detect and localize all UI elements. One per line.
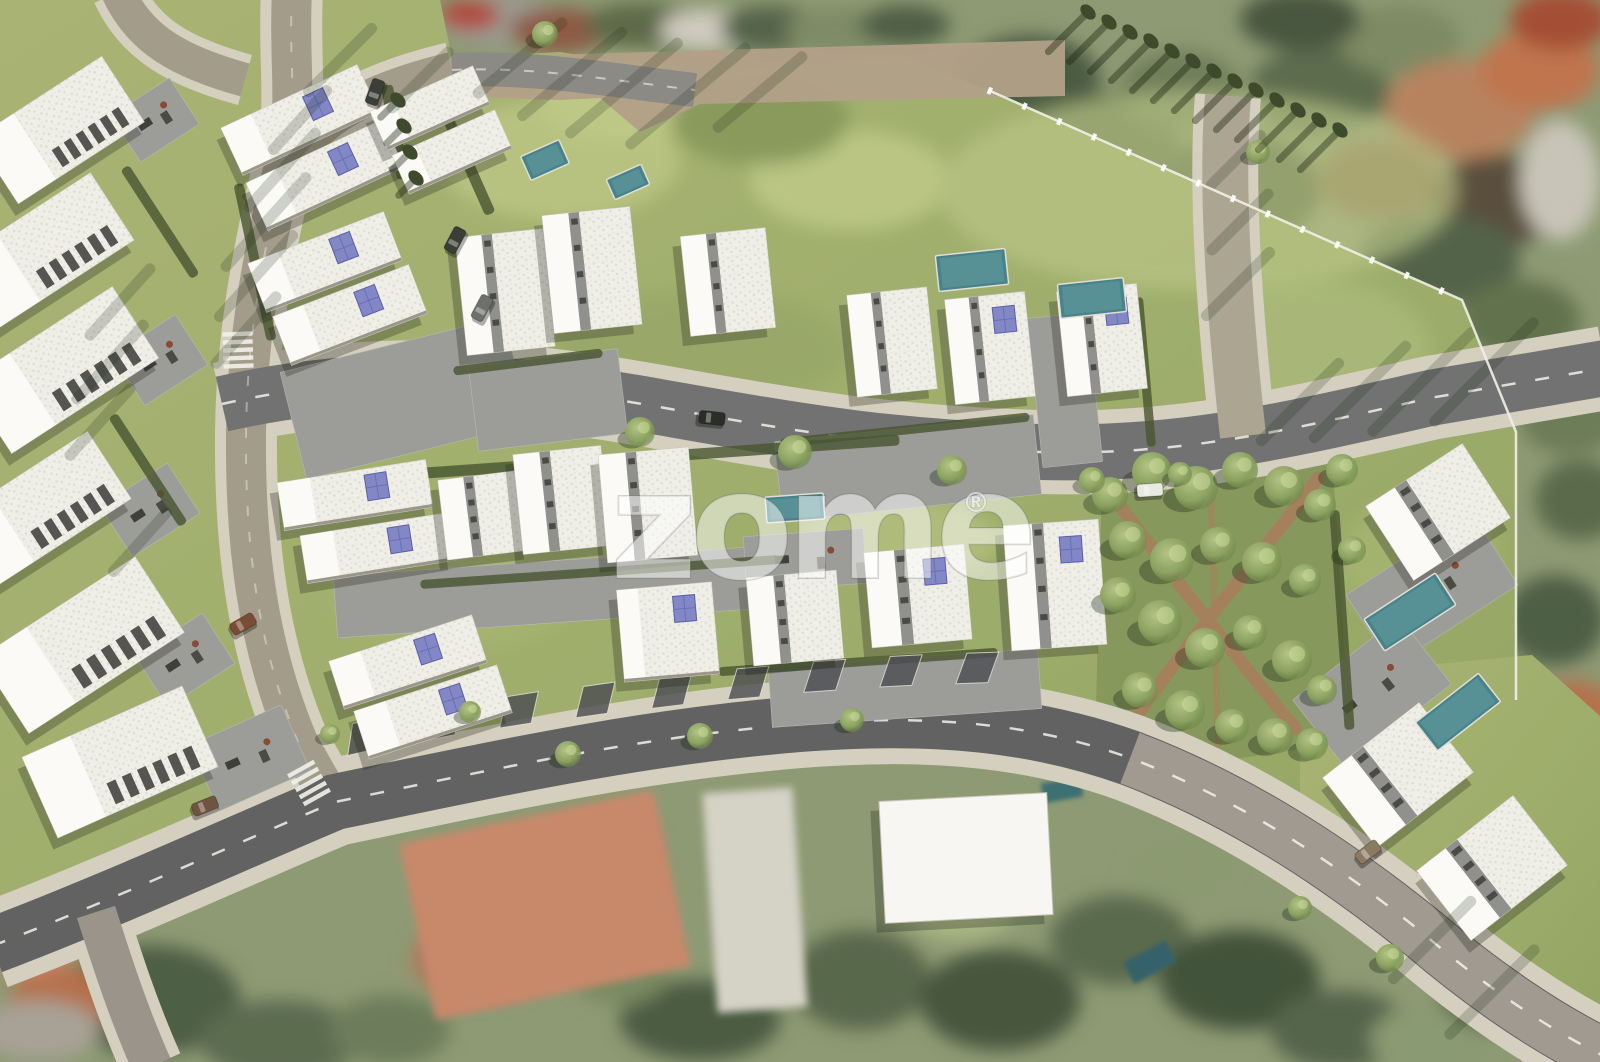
building (936, 292, 1036, 415)
watermark-registered-icon: ® (962, 486, 990, 519)
building (672, 228, 777, 346)
car (695, 410, 726, 429)
aerial-site-plan: zome ® (0, 0, 1600, 1062)
building (533, 207, 643, 343)
watermark-text: zome (610, 440, 1031, 614)
site-plan-render: zome ® (0, 0, 1600, 1062)
car (1134, 483, 1164, 501)
building (870, 793, 1054, 933)
road-branch-right (1225, 96, 1243, 436)
building (838, 287, 938, 407)
swimming-pool (935, 248, 1008, 291)
swimming-pool (1057, 278, 1126, 319)
watermark: zome ® (610, 440, 1031, 614)
